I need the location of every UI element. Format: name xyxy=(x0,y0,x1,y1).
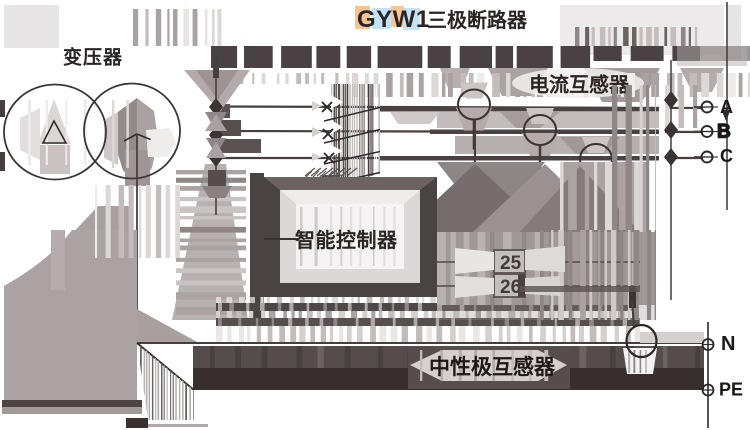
svg-text:C: C xyxy=(720,146,733,166)
svg-text:A: A xyxy=(720,97,733,117)
svg-text:中性极互感器: 中性极互感器 xyxy=(429,355,556,379)
svg-text:N: N xyxy=(721,333,735,355)
svg-text:PE: PE xyxy=(719,380,743,400)
svg-text:智能控制器: 智能控制器 xyxy=(295,228,398,252)
svg-text:三极断路器: 三极断路器 xyxy=(427,8,528,32)
svg-text:变压器: 变压器 xyxy=(63,46,123,69)
svg-text:B: B xyxy=(717,122,731,143)
svg-text:GYW1: GYW1 xyxy=(357,6,430,33)
